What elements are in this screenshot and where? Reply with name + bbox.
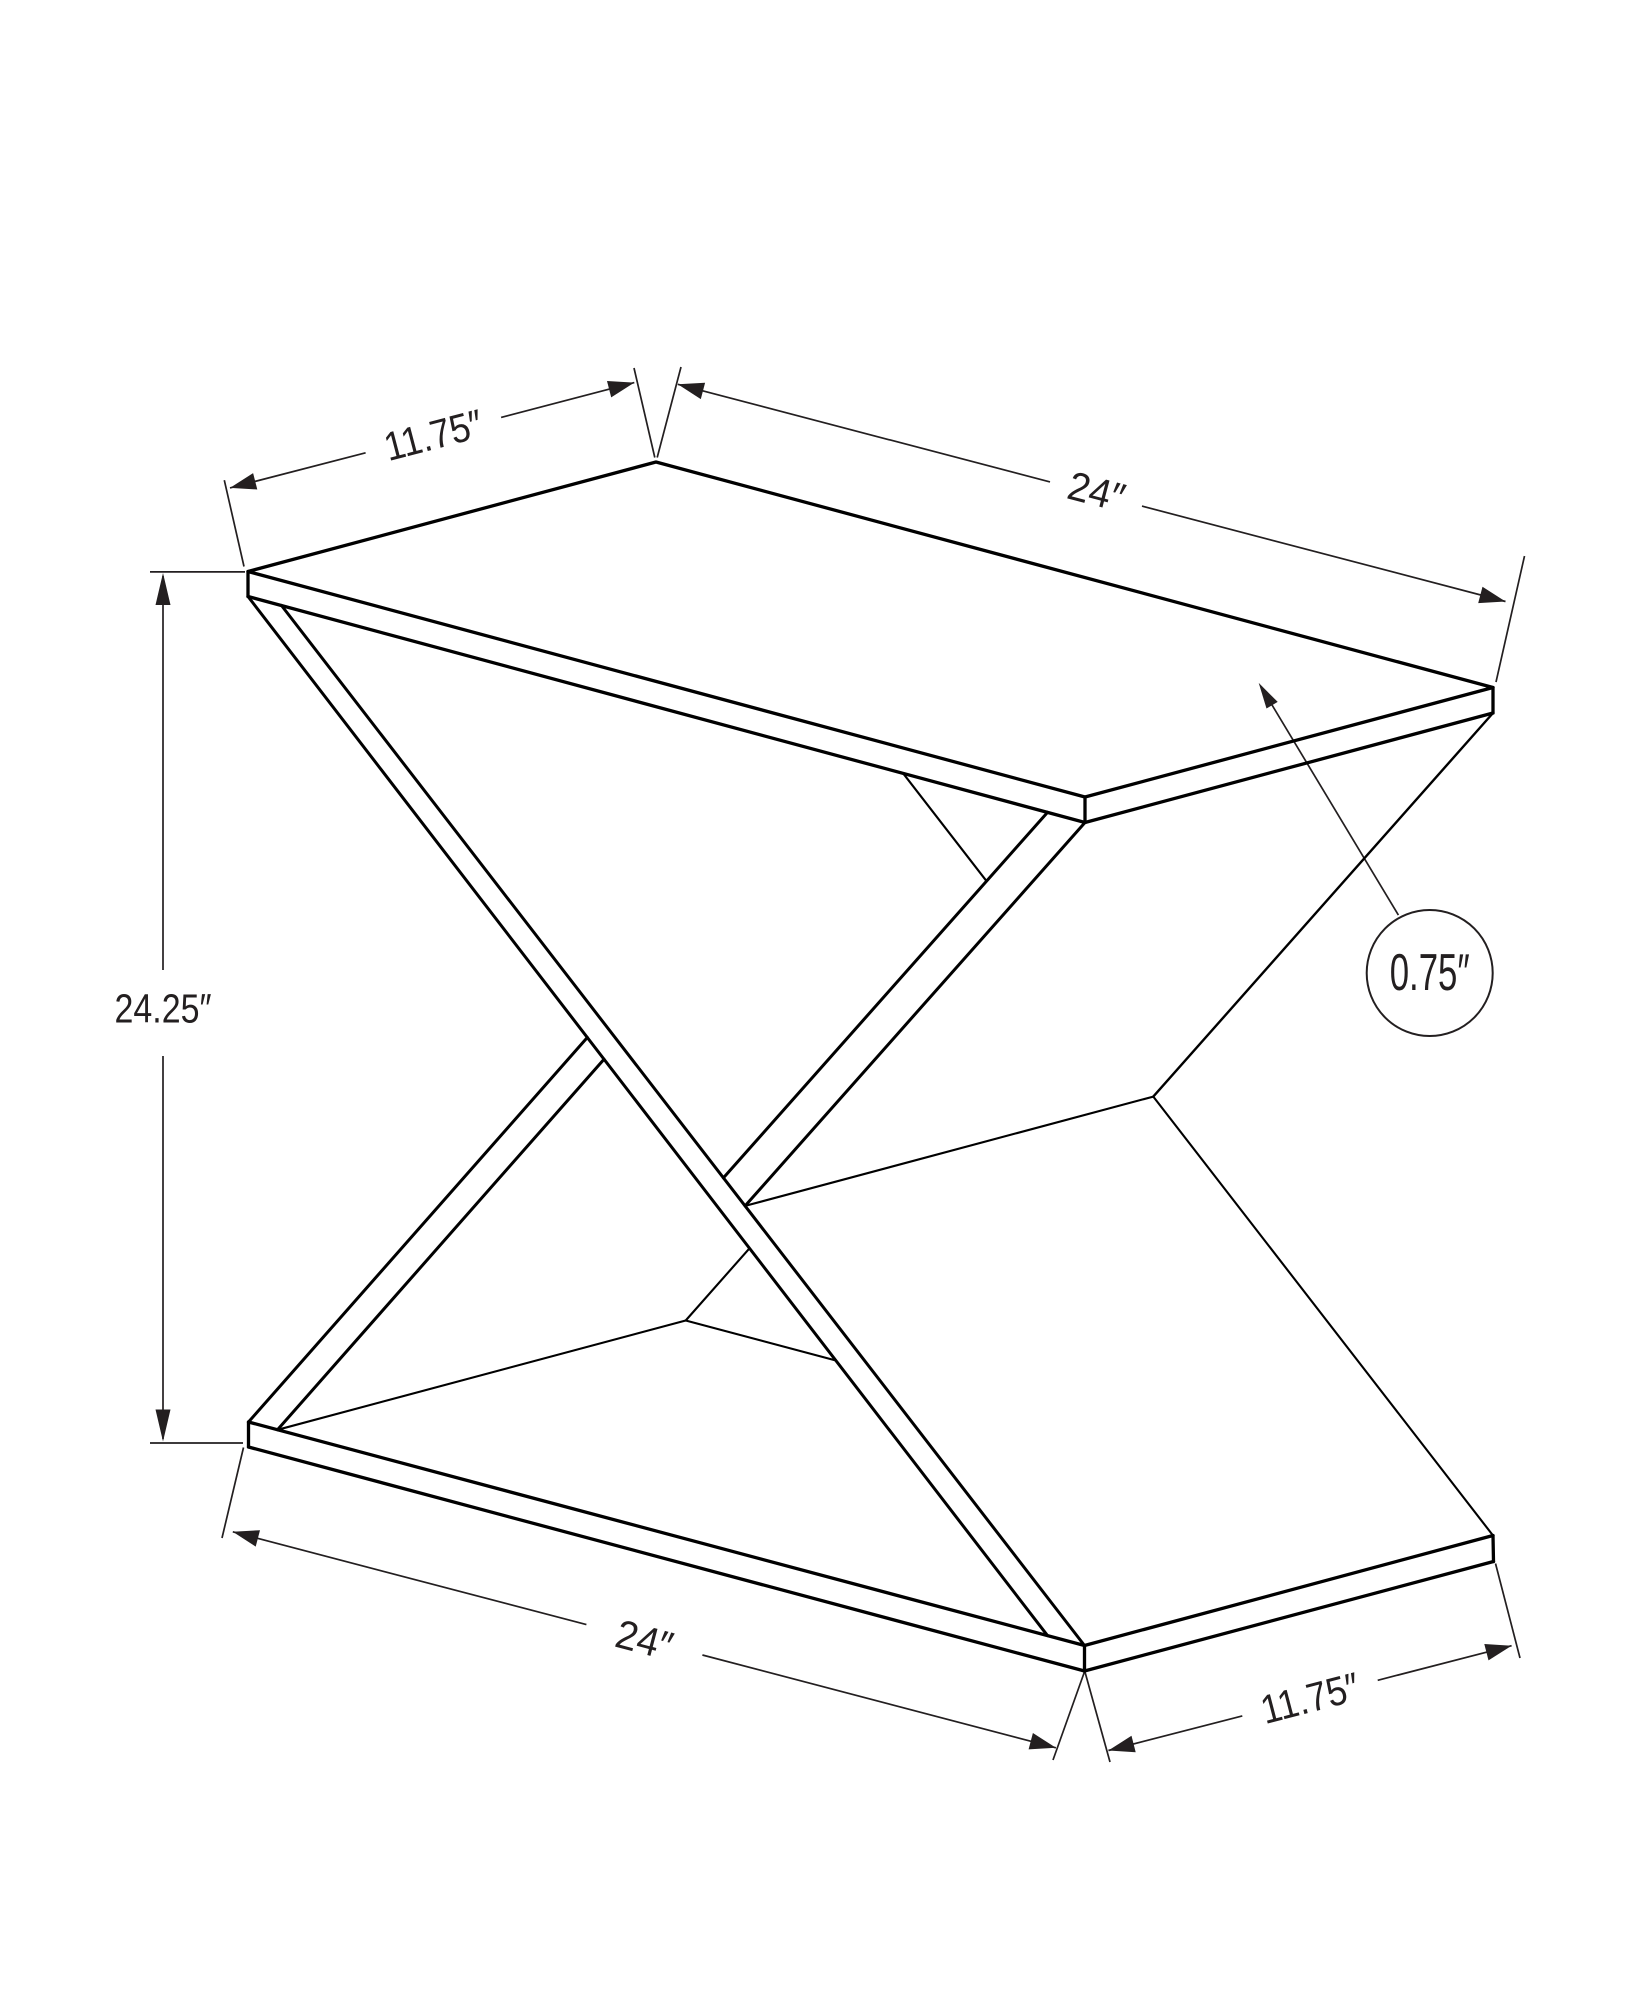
svg-text:0.75″: 0.75″ (1390, 944, 1470, 1002)
svg-text:24.25″: 24.25″ (115, 985, 212, 1031)
